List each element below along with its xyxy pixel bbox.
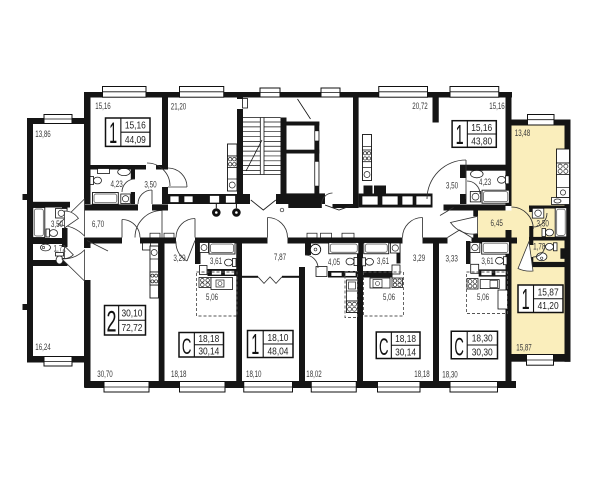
svg-text:41,20: 41,20	[538, 301, 559, 312]
svg-text:44,09: 44,09	[125, 135, 146, 146]
svg-text:С: С	[182, 334, 192, 359]
svg-text:18,10: 18,10	[246, 369, 262, 379]
svg-text:48,04: 48,04	[267, 346, 288, 357]
svg-text:1: 1	[109, 117, 117, 150]
svg-text:6,70: 6,70	[92, 219, 104, 229]
svg-text:4,05: 4,05	[328, 257, 340, 267]
svg-text:С: С	[454, 333, 464, 361]
svg-text:15,16: 15,16	[489, 101, 505, 111]
svg-text:18,30: 18,30	[472, 334, 493, 345]
svg-text:15,16: 15,16	[95, 101, 111, 111]
svg-text:18,18: 18,18	[414, 369, 430, 379]
svg-text:30,70: 30,70	[97, 369, 113, 379]
svg-text:1: 1	[522, 284, 530, 316]
svg-text:3,50: 3,50	[446, 181, 458, 191]
svg-text:18,10: 18,10	[267, 333, 288, 344]
svg-text:3,61: 3,61	[377, 256, 389, 266]
svg-text:30,14: 30,14	[395, 347, 416, 358]
svg-text:21,20: 21,20	[171, 102, 187, 112]
svg-text:20,72: 20,72	[412, 101, 428, 111]
svg-text:15,16: 15,16	[125, 121, 146, 132]
svg-text:3,61: 3,61	[481, 256, 493, 266]
svg-text:72,72: 72,72	[121, 323, 142, 334]
svg-text:2: 2	[106, 305, 116, 338]
svg-text:13,48: 13,48	[515, 128, 531, 138]
svg-text:15,87: 15,87	[538, 287, 559, 298]
svg-text:6,45: 6,45	[491, 218, 503, 228]
svg-text:18,18: 18,18	[395, 334, 416, 345]
svg-text:18,18: 18,18	[198, 334, 219, 345]
svg-text:30,14: 30,14	[198, 346, 219, 357]
svg-text:43,80: 43,80	[471, 136, 492, 147]
svg-text:16,24: 16,24	[35, 342, 51, 352]
svg-text:3,29: 3,29	[173, 253, 185, 263]
svg-text:5,06: 5,06	[383, 292, 395, 302]
svg-text:1,72: 1,72	[54, 244, 66, 254]
svg-text:1,78: 1,78	[533, 241, 545, 251]
svg-text:1: 1	[456, 119, 464, 150]
svg-text:5,06: 5,06	[477, 292, 489, 302]
svg-text:3,61: 3,61	[210, 256, 222, 266]
svg-text:3,50: 3,50	[51, 219, 63, 229]
svg-text:С: С	[379, 334, 389, 361]
svg-text:13,86: 13,86	[35, 129, 51, 139]
svg-text:30,10: 30,10	[121, 308, 142, 319]
svg-text:4,23: 4,23	[110, 179, 122, 189]
svg-text:3,33: 3,33	[446, 253, 458, 263]
svg-text:18,30: 18,30	[442, 370, 458, 380]
svg-text:15,87: 15,87	[516, 343, 532, 353]
svg-text:18,18: 18,18	[171, 369, 187, 379]
svg-text:5,06: 5,06	[206, 292, 218, 302]
svg-text:15,16: 15,16	[471, 123, 492, 134]
svg-text:3,50: 3,50	[537, 218, 549, 228]
svg-text:3,50: 3,50	[144, 180, 156, 190]
svg-text:7,87: 7,87	[274, 252, 286, 262]
svg-text:3,29: 3,29	[413, 253, 425, 263]
svg-text:1: 1	[251, 329, 259, 361]
svg-text:18,02: 18,02	[306, 369, 322, 379]
svg-text:30,30: 30,30	[472, 347, 493, 358]
svg-text:4,23: 4,23	[479, 177, 491, 187]
